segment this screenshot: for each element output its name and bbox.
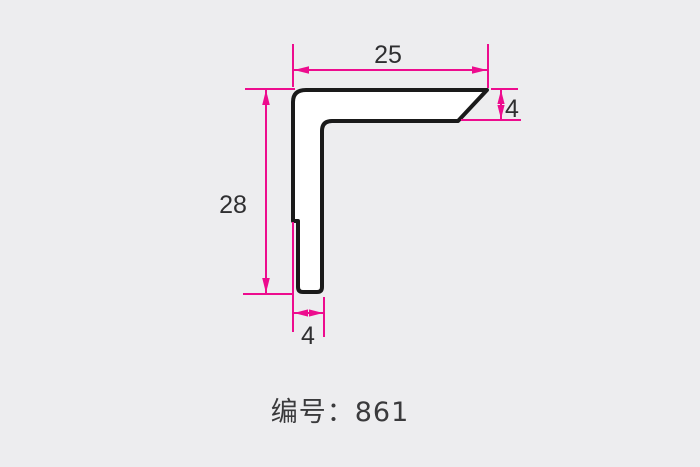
dimension-value-right-thickness: 4 <box>505 95 519 123</box>
dimension-value-left-height: 28 <box>219 191 247 219</box>
dimension-value-bottom-thickness: 4 <box>301 322 315 350</box>
arrow-up <box>497 90 504 104</box>
dimension-top-width: 25 <box>293 41 488 88</box>
part-number-label: 编号：861 <box>0 390 680 429</box>
arrow-down <box>262 278 270 293</box>
arrow-up <box>262 90 270 105</box>
drawing-canvas: 25 4 28 4 编号：86 <box>0 0 700 467</box>
arrow-right <box>309 309 323 316</box>
dimension-left-height: 28 <box>219 89 295 294</box>
arrow-down <box>497 105 504 119</box>
arrow-left <box>294 66 309 74</box>
profile-outline <box>293 90 487 292</box>
dimension-value-top-width: 25 <box>374 41 402 69</box>
arrow-left <box>294 309 308 316</box>
arrow-right <box>472 66 487 74</box>
